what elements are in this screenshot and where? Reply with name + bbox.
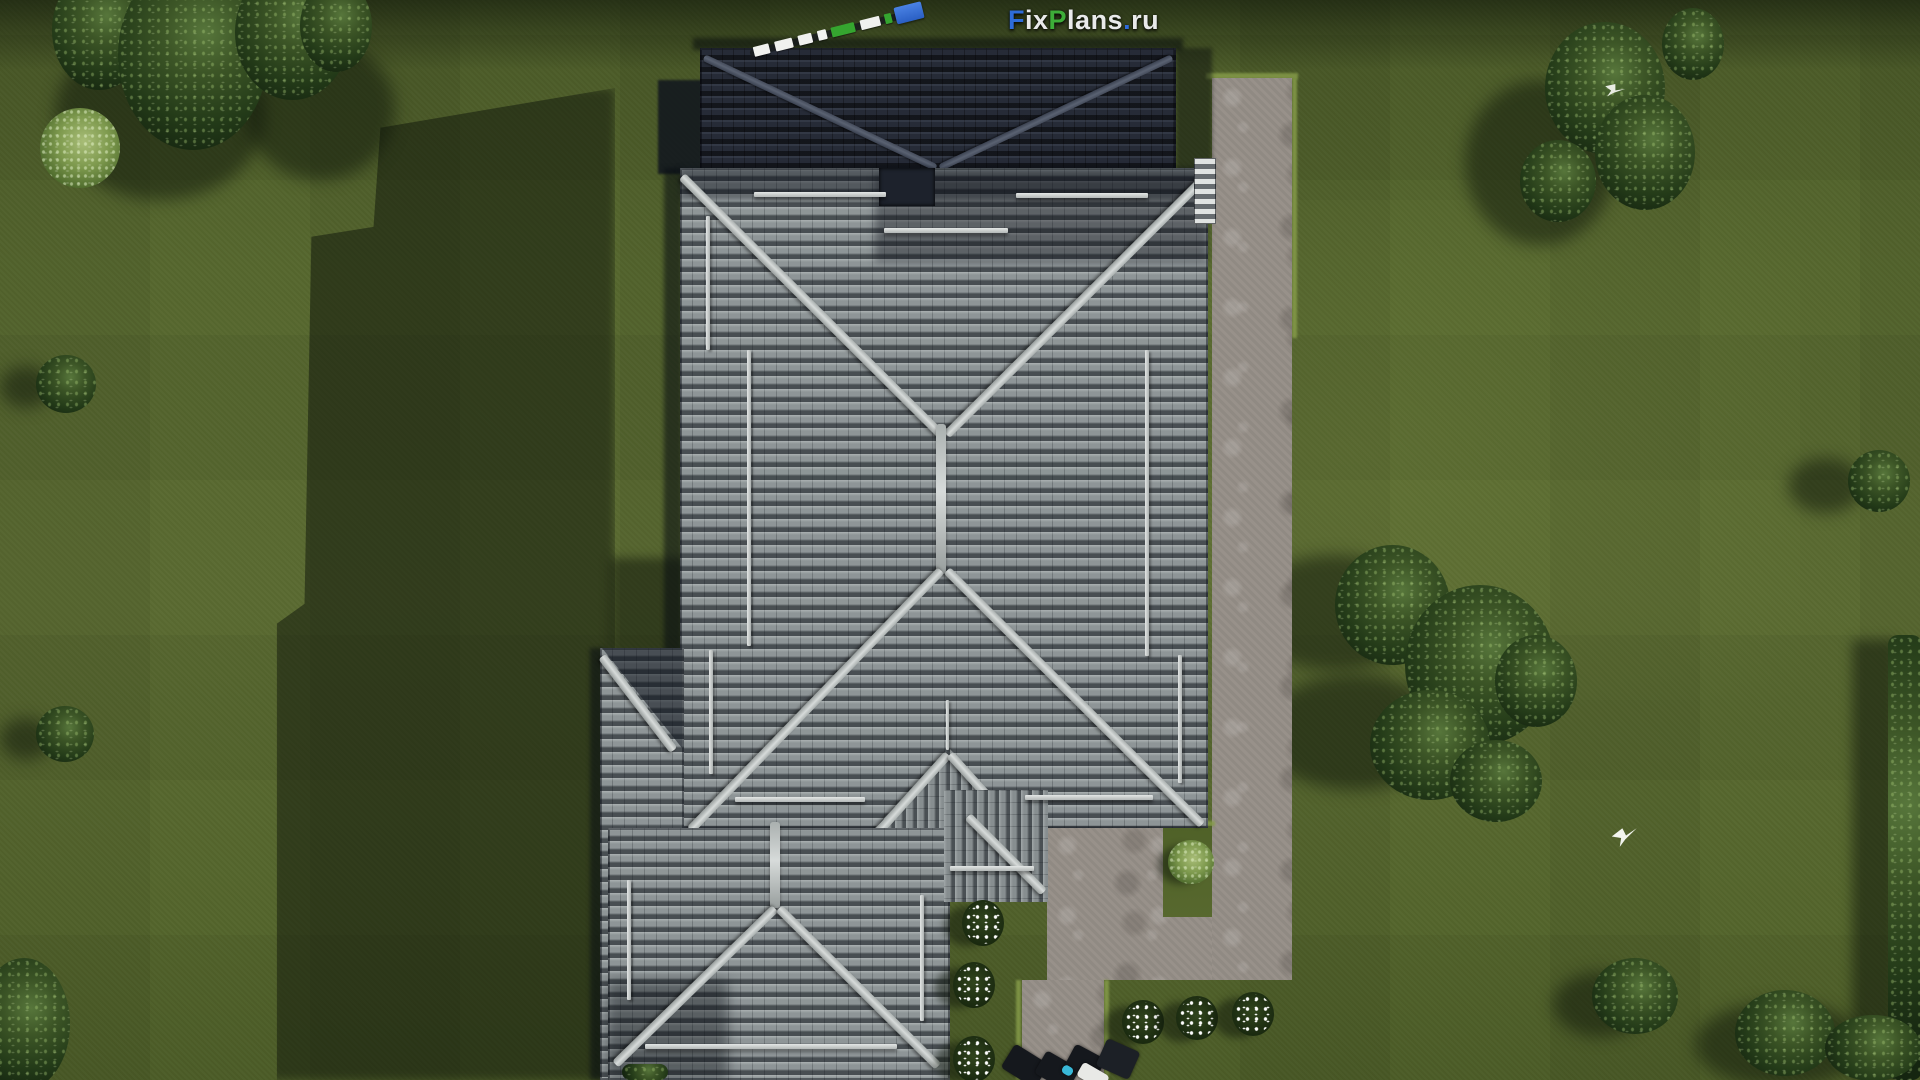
garden-path [1212,78,1292,980]
vent-strip [627,880,631,1000]
vent-pipe [946,700,949,750]
house-cast-shadow [270,88,615,1080]
snow-guard-bar [884,228,1008,233]
watermark-logo: FixPlans.ru [1008,5,1159,36]
flower-shrub [953,962,995,1008]
logo-segment: P [1049,5,1068,35]
vent-strip [706,216,710,350]
snow-guard-bar [754,192,886,197]
bush [622,1064,668,1080]
snow-guard-bar [735,797,865,802]
aerial-render-canvas: FixPlans.ru [0,0,1920,1080]
snow-guard-bar [645,1044,897,1049]
snow-guard-bar [950,866,1034,871]
flower-shrub [1232,992,1274,1036]
rod-white-segment [774,38,794,52]
path-grass-edging [1292,78,1297,338]
logo-segment: F [1008,5,1025,35]
vent-strip [1178,655,1182,783]
tree-canopy [36,355,96,413]
upper-west-wall-shadow [658,80,702,174]
snow-guard-bar [1025,795,1153,800]
snow-guard-bar [1016,193,1148,198]
chimney-recess [879,168,935,206]
tree-canopy [1595,95,1695,210]
bush [40,108,120,188]
vent-strip [747,350,751,646]
entry-steps [1194,158,1216,224]
rod-white-segment [859,16,881,31]
tree-canopy [1592,958,1678,1034]
vent-strip [920,895,924,1021]
rod-white-segment [797,33,813,46]
main-ridge-vertical [936,424,946,574]
hedge-row [1888,635,1920,1080]
upper-roof-shadowed [700,48,1176,170]
tree-canopy [1495,635,1577,727]
logo-segment: ix [1025,5,1049,35]
rod-green-segment [830,22,856,38]
garage-ridge-vertical [770,822,780,908]
flower-shrub [1176,996,1218,1040]
vent-strip [1145,350,1149,656]
tree-canopy [1735,990,1835,1076]
flower-shrub [953,1036,995,1080]
green-bush [1168,840,1214,884]
logo-segment: lans [1067,5,1123,35]
tree-canopy [1662,8,1724,80]
tree-canopy [1520,140,1596,222]
tree-canopy [36,706,94,762]
flower-shrub [962,900,1004,946]
tree-canopy [1825,1015,1920,1080]
tree-canopy [1450,740,1542,822]
logo-segment: . [1123,5,1131,35]
rod-white-segment [753,43,771,57]
tree-canopy [1848,450,1910,512]
logo-segment: ru [1131,5,1159,35]
vent-strip [709,650,713,774]
